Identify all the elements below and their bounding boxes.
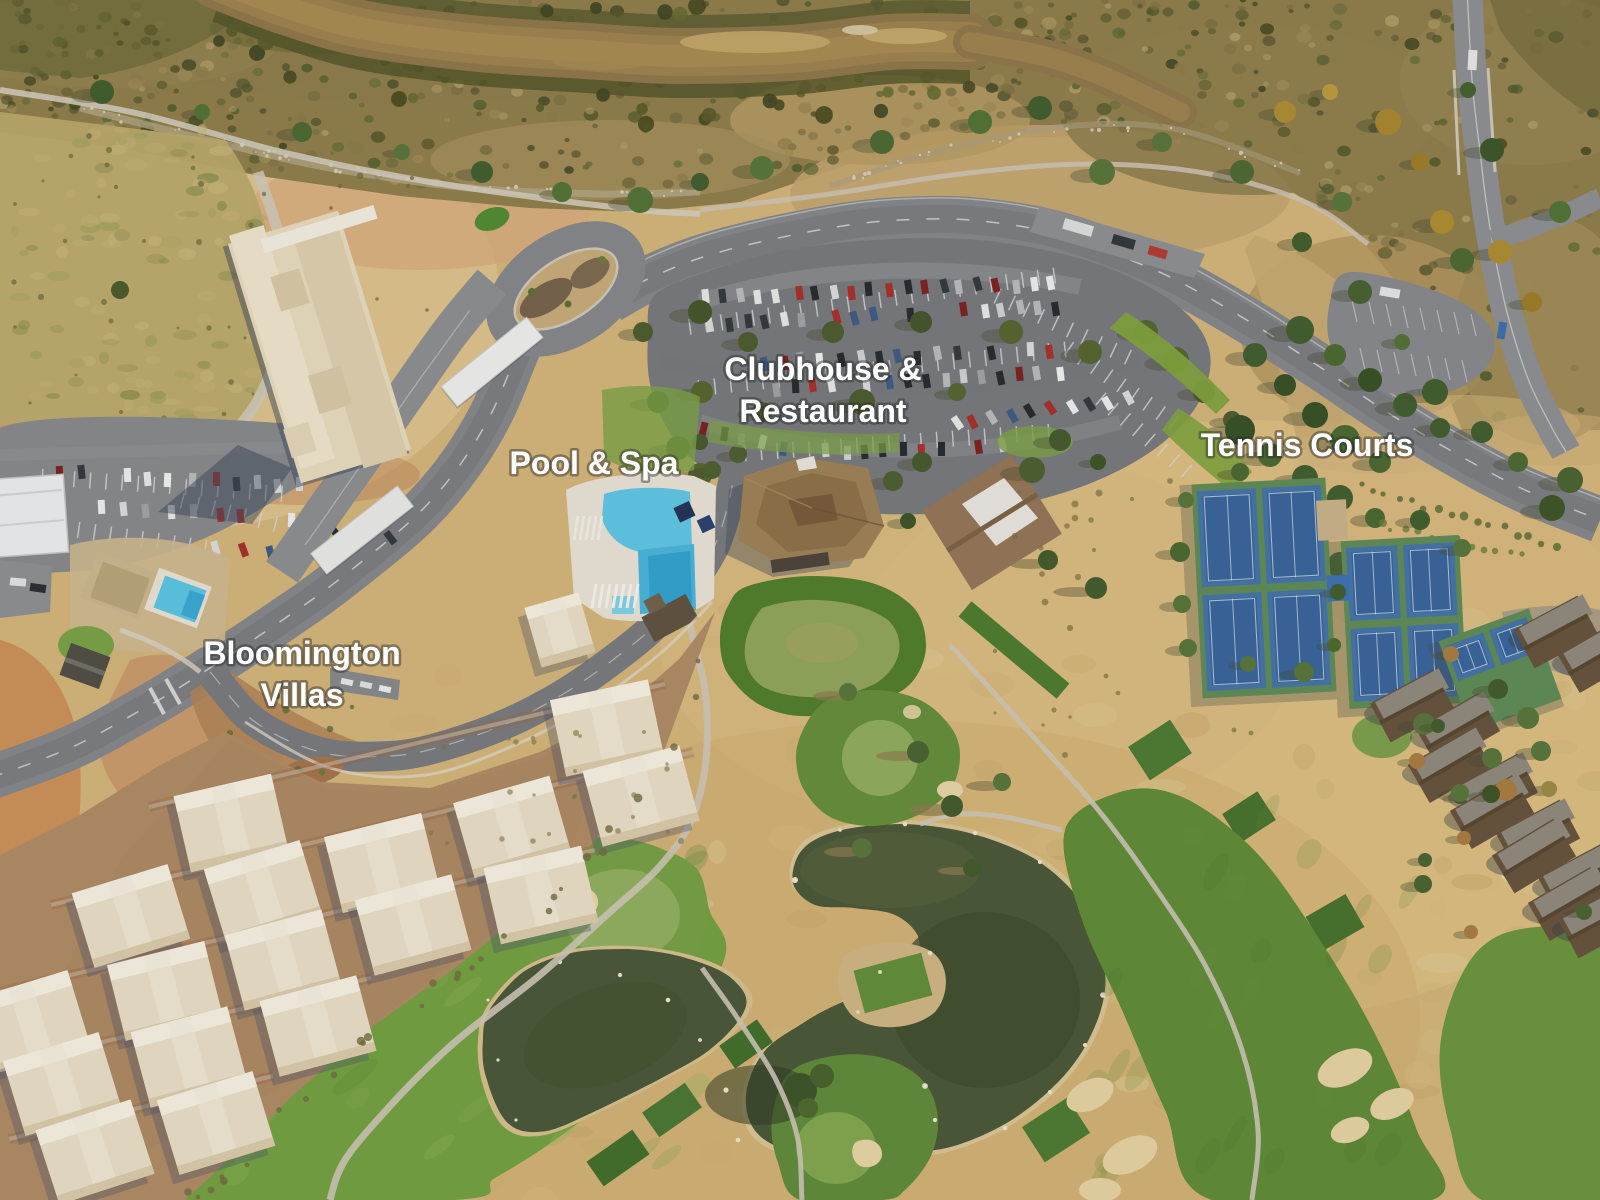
svg-text:Tennis Courts: Tennis Courts bbox=[1201, 427, 1414, 463]
svg-text:Restaurant: Restaurant bbox=[739, 393, 907, 429]
svg-text:Bloomington: Bloomington bbox=[203, 635, 400, 671]
svg-text:Clubhouse &: Clubhouse & bbox=[724, 351, 921, 387]
svg-text:Pool & Spa: Pool & Spa bbox=[510, 445, 679, 481]
svg-text:Villas: Villas bbox=[260, 677, 343, 713]
